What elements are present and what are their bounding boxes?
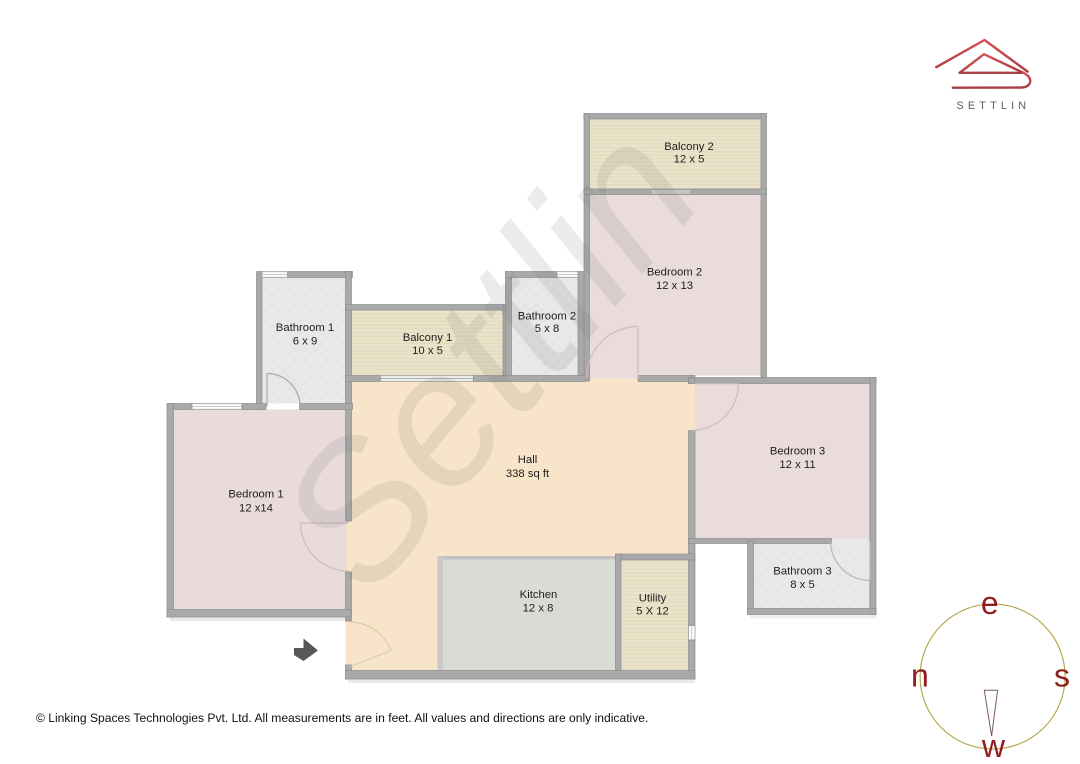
svg-text:338 sq ft: 338 sq ft: [506, 468, 550, 480]
svg-text:5 x 8: 5 x 8: [535, 323, 560, 335]
svg-text:Bedroom 1: Bedroom 1: [228, 489, 283, 501]
svg-text:Bedroom 2: Bedroom 2: [647, 267, 702, 279]
svg-text:s: s: [1054, 658, 1070, 694]
svg-text:12 x 13: 12 x 13: [656, 280, 693, 292]
svg-text:12 x 5: 12 x 5: [674, 154, 705, 166]
svg-text:SETTLIN: SETTLIN: [957, 100, 1031, 112]
svg-text:12 x 11: 12 x 11: [779, 459, 815, 471]
svg-text:5 X 12: 5 X 12: [636, 606, 669, 618]
svg-text:Hall: Hall: [518, 454, 537, 466]
svg-text:Kitchen: Kitchen: [520, 589, 558, 601]
svg-text:Balcony 2: Balcony 2: [664, 141, 714, 153]
svg-text:12 x14: 12 x14: [239, 503, 273, 515]
svg-text:6 x 9: 6 x 9: [293, 336, 318, 348]
svg-text:Utility: Utility: [639, 593, 667, 605]
svg-text:Bathroom 1: Bathroom 1: [276, 322, 334, 334]
svg-text:8 x 5: 8 x 5: [790, 579, 815, 591]
svg-text:Bathroom 3: Bathroom 3: [773, 566, 831, 578]
svg-text:© Linking Spaces Technologies: © Linking Spaces Technologies Pvt. Ltd. …: [36, 711, 648, 725]
svg-text:n: n: [911, 658, 929, 694]
svg-text:Bedroom 3: Bedroom 3: [770, 446, 825, 458]
svg-text:12 x 8: 12 x 8: [523, 603, 554, 615]
svg-text:Balcony 1: Balcony 1: [403, 332, 453, 344]
svg-text:Bathroom 2: Bathroom 2: [518, 311, 576, 323]
svg-text:10 x 5: 10 x 5: [412, 345, 443, 357]
svg-text:e: e: [981, 585, 999, 621]
svg-text:w: w: [981, 728, 1006, 764]
